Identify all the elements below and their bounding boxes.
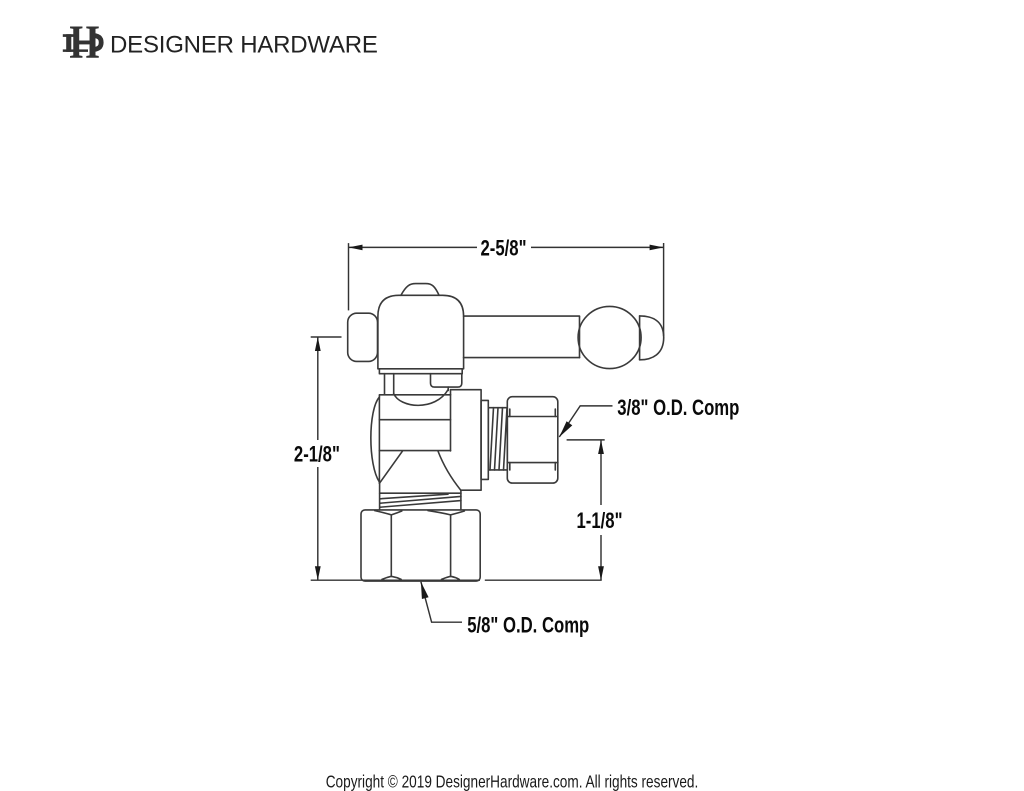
svg-text:Copyright © 2019 DesignerHardw: Copyright © 2019 DesignerHardware.com. A… — [326, 773, 699, 791]
svg-text:2-1/8": 2-1/8" — [294, 442, 340, 467]
svg-text:1-1/8": 1-1/8" — [577, 509, 623, 534]
svg-text:DESIGNER HARDWARE: DESIGNER HARDWARE — [110, 31, 378, 58]
svg-text:3/8" O.D. Comp: 3/8" O.D. Comp — [617, 396, 739, 421]
svg-text:2-5/8": 2-5/8" — [481, 236, 527, 261]
svg-text:H: H — [69, 16, 99, 69]
svg-text:5/8" O.D. Comp: 5/8" O.D. Comp — [467, 613, 589, 638]
